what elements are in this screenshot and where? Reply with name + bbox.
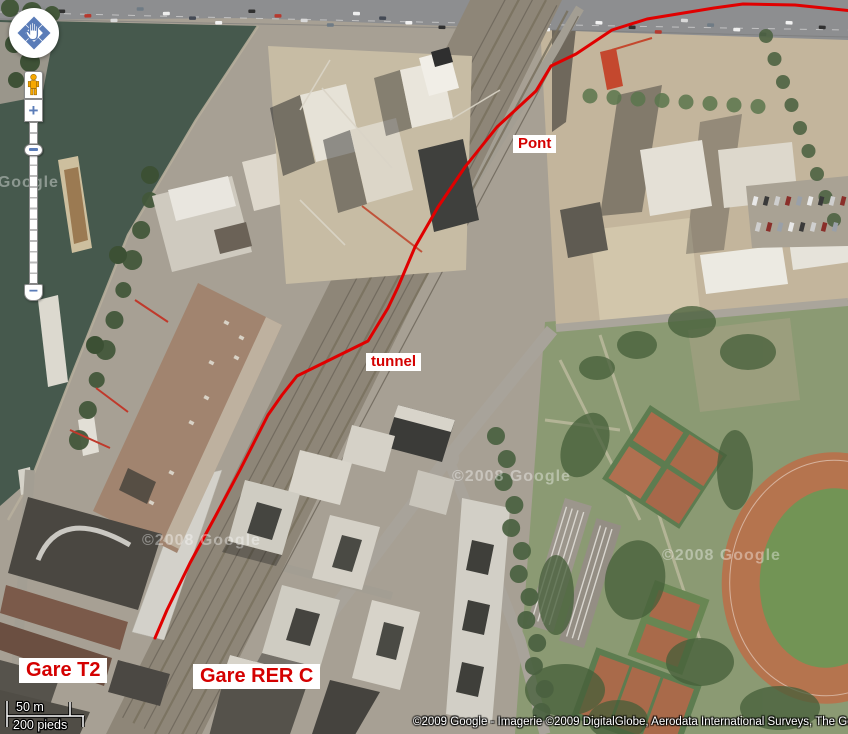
map-label-tunnel: tunnel [366,353,421,371]
pegman-icon [25,72,42,98]
zoom-in-button[interactable]: + [24,99,43,122]
pan-control[interactable] [9,8,59,58]
map-label-gare-t2: Gare T2 [19,658,107,683]
pan-right-arrow-icon[interactable] [39,25,51,41]
zoom-out-button[interactable]: − [24,284,43,301]
pegman-button[interactable] [24,71,43,99]
map-label-gare-rer-c: Gare RER C [193,664,320,689]
zoom-handle-bar-icon [29,148,38,151]
zoom-slider-handle[interactable] [24,144,43,156]
copyright-text: ©2009 Google - Imagerie ©2009 DigitalGlo… [413,716,848,728]
construction-zone-right [540,24,848,326]
map-viewport: ©2008 Google ©2008 Google ©2008 Google ©… [0,0,848,734]
satellite-map[interactable] [0,0,848,734]
map-label-pont: Pont [513,135,556,153]
